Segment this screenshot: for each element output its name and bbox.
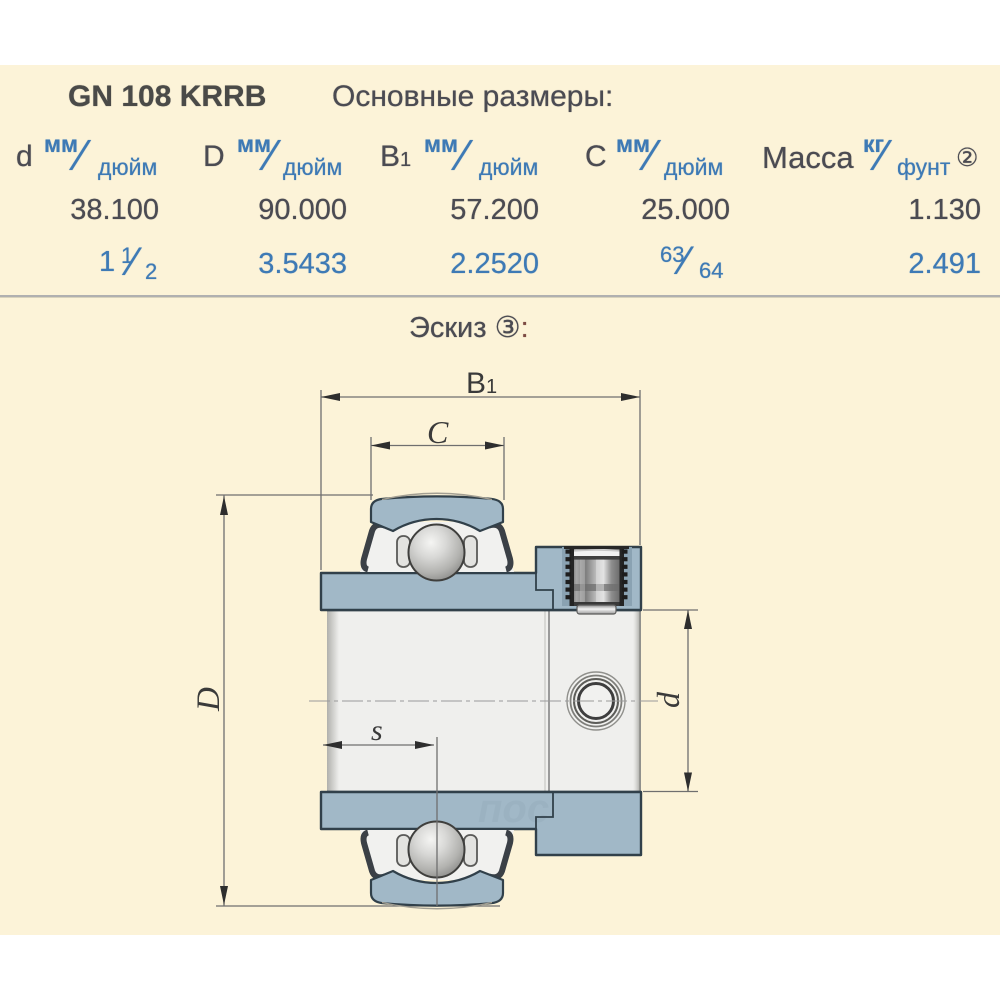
svg-text:D: D xyxy=(191,687,227,712)
svg-text:C: C xyxy=(427,414,449,450)
svg-text:B1: B1 xyxy=(466,367,497,400)
svg-text:s: s xyxy=(371,714,383,747)
svg-text:d: d xyxy=(650,691,686,708)
svg-text:пос: пос xyxy=(478,787,549,831)
